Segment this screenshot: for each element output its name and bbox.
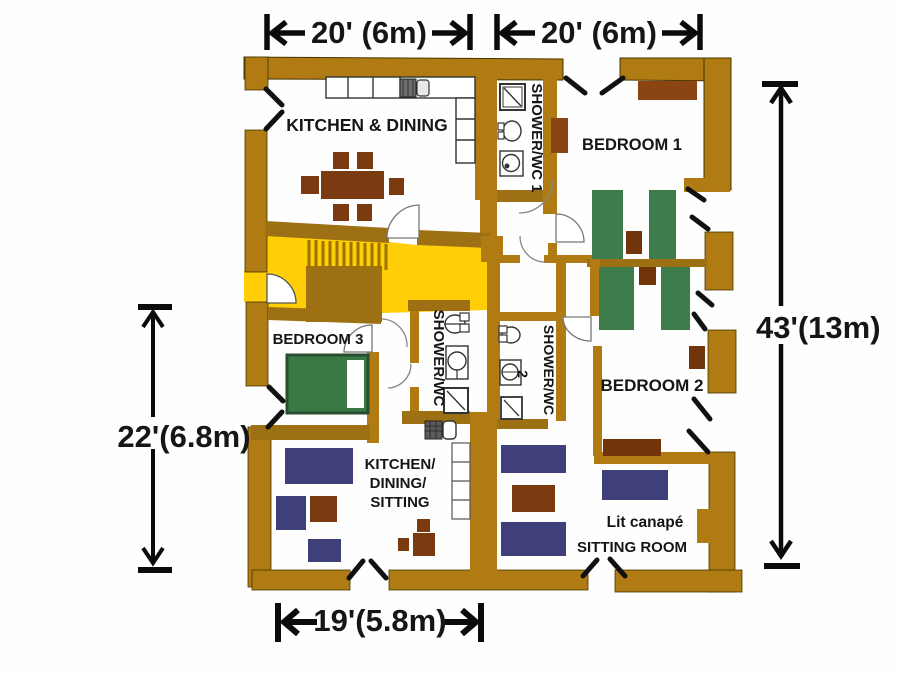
svg-text:2: 2 <box>515 370 531 378</box>
svg-text:KITCHEN/: KITCHEN/ <box>365 456 437 473</box>
svg-text:SITTING ROOM: SITTING ROOM <box>577 539 687 556</box>
svg-text:43'(13m): 43'(13m) <box>756 310 881 345</box>
svg-text:KITCHEN & DINING: KITCHEN & DINING <box>286 115 447 135</box>
svg-text:SHOWER/WC: SHOWER/WC <box>430 310 447 407</box>
svg-text:SHOWER/WC 1: SHOWER/WC 1 <box>528 83 545 192</box>
svg-text:BEDROOM 1: BEDROOM 1 <box>582 136 682 154</box>
svg-text:SHOWER/WC: SHOWER/WC <box>541 325 557 415</box>
svg-text:DINING/: DINING/ <box>370 475 428 492</box>
svg-text:Lit canapé: Lit canapé <box>607 514 684 531</box>
svg-text:20' (6m): 20' (6m) <box>311 15 427 50</box>
svg-text:19'(5.8m): 19'(5.8m) <box>313 603 446 638</box>
svg-text:22'(6.8m): 22'(6.8m) <box>117 419 250 454</box>
svg-text:SITTING: SITTING <box>370 494 429 511</box>
svg-text:BEDROOM 2: BEDROOM 2 <box>601 376 704 395</box>
svg-text:BEDROOM 3: BEDROOM 3 <box>273 331 364 348</box>
svg-text:20' (6m): 20' (6m) <box>541 15 657 50</box>
